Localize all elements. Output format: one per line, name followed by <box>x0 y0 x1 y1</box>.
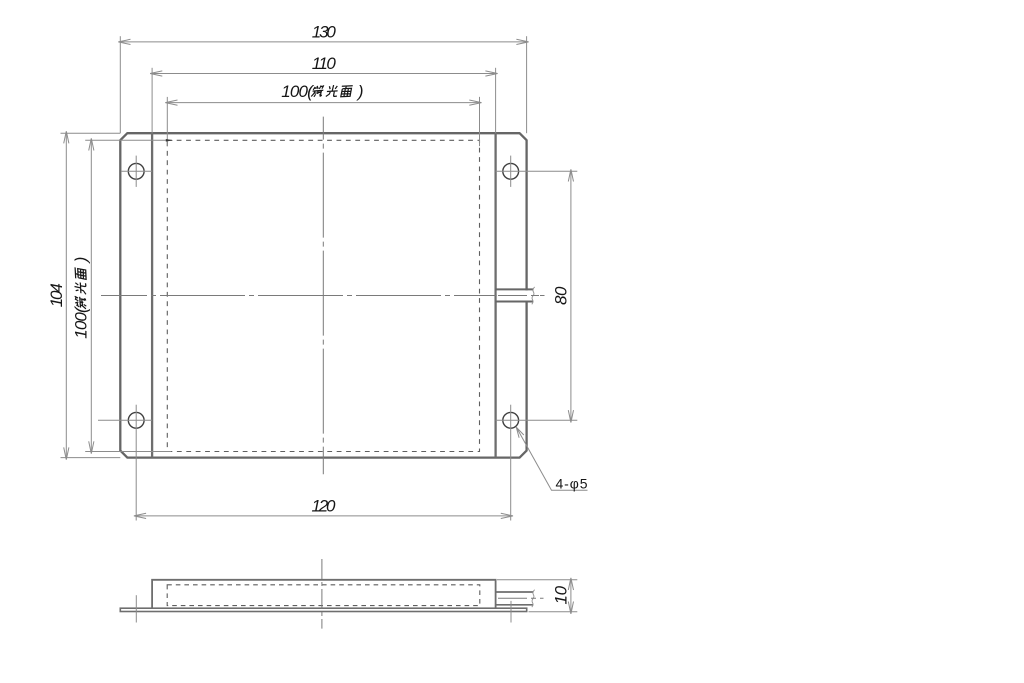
svg-text:80: 80 <box>551 286 570 305</box>
svg-text:120: 120 <box>312 496 337 515</box>
svg-text:10: 10 <box>551 585 570 604</box>
svg-text:4-φ5: 4-φ5 <box>556 476 588 492</box>
svg-text:104: 104 <box>47 283 66 307</box>
svg-text:110: 110 <box>312 54 337 73</box>
svg-text:130: 130 <box>312 22 337 41</box>
